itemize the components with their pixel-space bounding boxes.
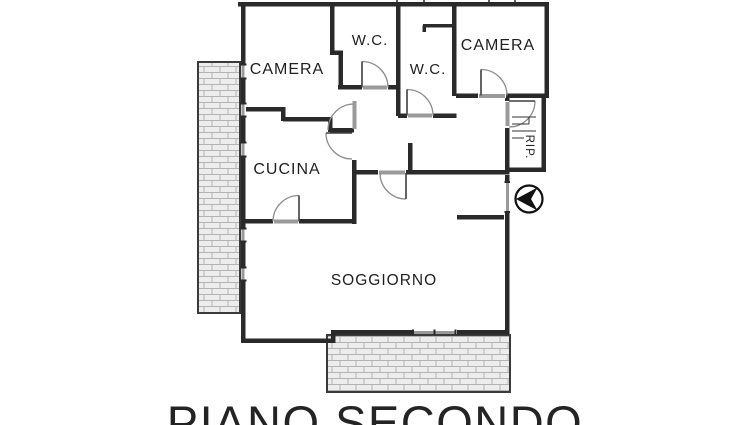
room-label-cucina: CUCINA	[253, 161, 320, 178]
window-ticks	[240, 65, 510, 336]
room-label-wc-2: W.C.	[410, 61, 447, 78]
room-label-soggiorno: SOGGIORNO	[331, 272, 437, 289]
floor-plan-page: CAMERA W.C. W.C. CAMERA CUCINA SOGGIORNO…	[0, 0, 750, 425]
room-label-wc-1: W.C.	[352, 32, 389, 49]
floor-title: PIANO SECONDO	[0, 398, 750, 425]
north-arrow-icon	[516, 186, 543, 213]
windows	[243, 65, 507, 332]
room-label-ripostiglio: RIP.	[523, 135, 535, 160]
floor-plan-drawing: CAMERA W.C. W.C. CAMERA CUCINA SOGGIORNO…	[0, 0, 750, 425]
balcony-left	[198, 62, 240, 313]
room-label-camera-1: CAMERA	[250, 61, 324, 78]
room-label-camera-2: CAMERA	[461, 37, 535, 54]
balcony-bottom	[327, 335, 510, 392]
door-swings	[273, 62, 535, 222]
